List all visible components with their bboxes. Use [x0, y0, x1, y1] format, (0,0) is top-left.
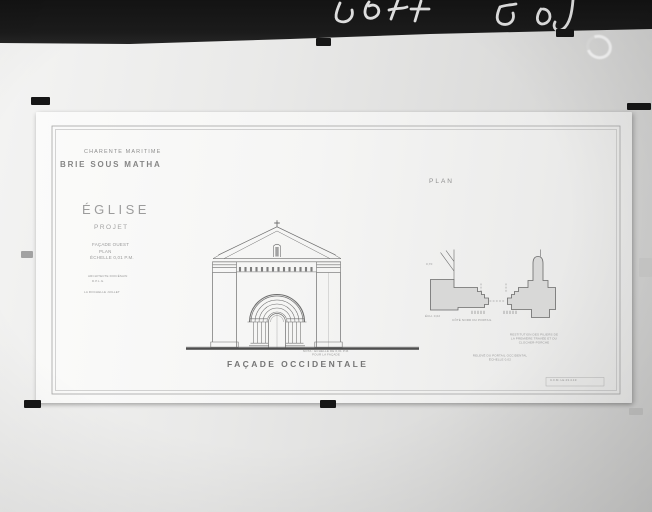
- mount-tab: [316, 38, 331, 46]
- mount-tab: [556, 29, 574, 37]
- plan-bottom-caption: RELEVÉ DU PORTAIL OCCIDENTAL ÉCHELLE 0,0…: [468, 354, 532, 362]
- building-title: ÉGLISE: [82, 202, 150, 217]
- plan-right-caption: RESTITUTION DES PILIERS DE LA PREMIÈRE T…: [504, 333, 564, 345]
- facade-note: NOTA : ÉCHELLE DE 0,01 P.M. POUR LA FAÇA…: [294, 350, 358, 357]
- plan-left-caption: CÔTÉ NORD DU PORTAIL: [452, 319, 492, 322]
- facade-note-line: POUR LA FAÇADE: [294, 353, 358, 357]
- architect-line-1: ARCHITECTE DIOCÉSAIN: [88, 275, 128, 278]
- plan-north-wall: [431, 280, 489, 311]
- plan-title: PLAN: [429, 178, 454, 185]
- plan-bottom-caption-line: ÉCHELLE 0,02: [468, 358, 532, 362]
- signature-date: C.F.M. LE 23.4.19: [550, 379, 577, 382]
- piece-line-1: FAÇADE OUEST: [92, 242, 129, 247]
- plan-right-caption-line: CLOCHER-PORCHE: [504, 341, 564, 345]
- commune-label: BRIE SOUS MATHA: [60, 160, 162, 169]
- plan-south-wall: [508, 257, 556, 318]
- mount-tab: [24, 400, 41, 408]
- facade-note-line: NOTA : ÉCHELLE DE 0,01 P.M.: [294, 350, 358, 354]
- archival-photograph: CHARENTE MARITIME BRIE SOUS MATHA ÉGLISE…: [0, 0, 652, 512]
- plan-dim-label: 0,70: [426, 263, 432, 266]
- mount-tab: [31, 97, 50, 105]
- architect-line-2: D.P.L.G.: [92, 280, 104, 283]
- mount-tab: [320, 400, 336, 408]
- mount-tab: [629, 408, 643, 415]
- department-label: CHARENTE MARITIME: [84, 149, 161, 155]
- facade-caption: FAÇADE OCCIDENTALE: [227, 359, 368, 369]
- piece-line-2: PLAN: [99, 249, 112, 254]
- mount-tab: [639, 258, 652, 277]
- portal-plan-drawing: [431, 250, 556, 318]
- place-date-label: LA ROCHELLE JUILLET: [84, 291, 120, 294]
- plan-scale-label: ÉCH. 0,02: [425, 315, 440, 318]
- mount-tab: [21, 251, 33, 258]
- project-label: PROJET: [94, 224, 129, 231]
- piece-line-3: ÉCHELLE 0,01 P.M.: [90, 255, 134, 260]
- mount-tab: [627, 103, 651, 110]
- facade-elevation-drawing: [211, 220, 342, 349]
